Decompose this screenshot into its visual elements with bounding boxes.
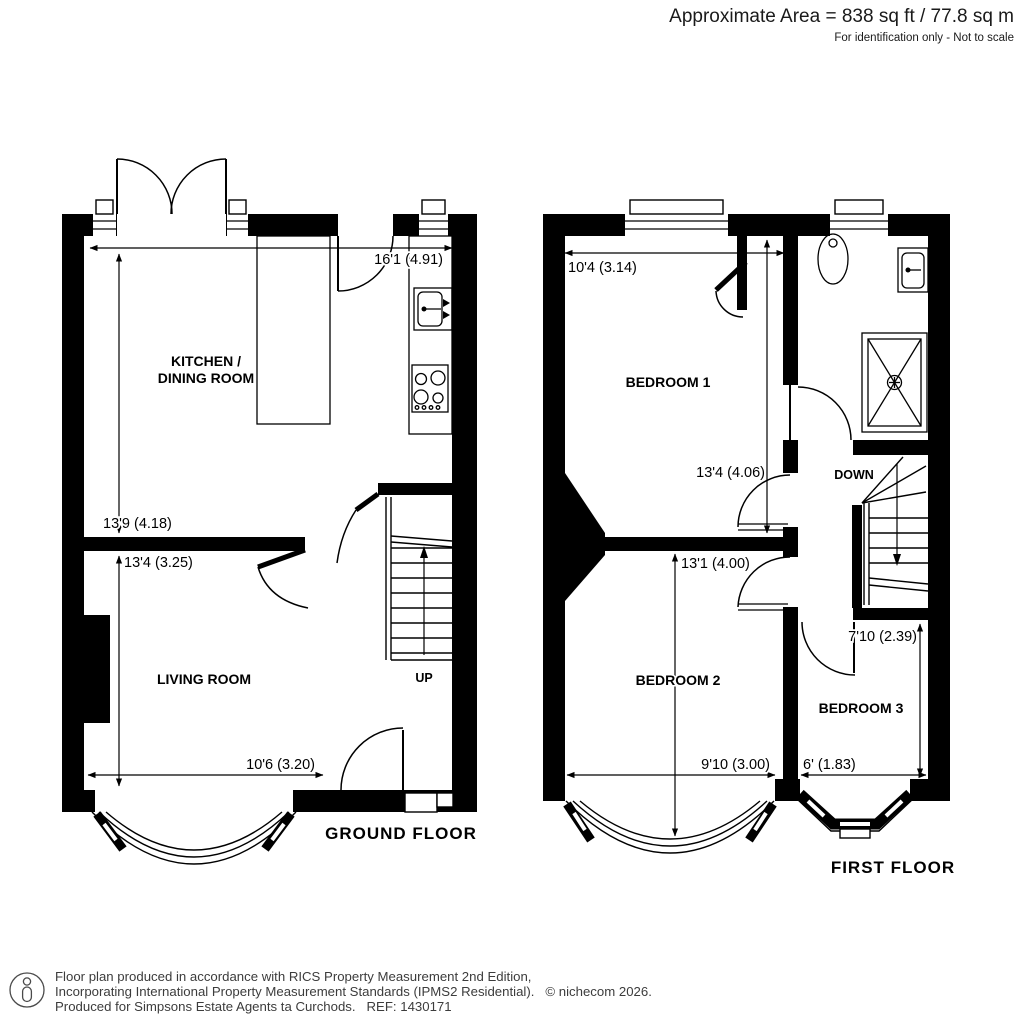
hob-icon bbox=[412, 365, 448, 412]
bay-window-icon bbox=[565, 779, 775, 853]
floor-plan-svg: Approximate Area = 838 sq ft / 77.8 sq m… bbox=[0, 0, 1024, 1018]
floor-plan-page: Approximate Area = 838 sq ft / 77.8 sq m… bbox=[0, 0, 1024, 1018]
bedroom3-label: BEDROOM 3 bbox=[819, 700, 904, 716]
bedroom3-width-dim: 6' (1.83) bbox=[803, 757, 856, 773]
kitchen-island bbox=[257, 236, 330, 424]
chimney-breast bbox=[84, 615, 110, 723]
bedroom3-depth-dim: 7'10 (2.39) bbox=[848, 629, 917, 645]
stairwell-wall bbox=[852, 505, 862, 608]
header: Approximate Area = 838 sq ft / 77.8 sq m… bbox=[669, 6, 1014, 44]
ground-floor-title: GROUND FLOOR bbox=[325, 824, 477, 843]
stairs-top-wall bbox=[378, 483, 452, 495]
bathroom-door-icon bbox=[790, 385, 851, 440]
footer-line2: Incorporating International Property Mea… bbox=[55, 984, 652, 999]
bedroom1-label: BEDROOM 1 bbox=[626, 374, 711, 390]
approximate-area-text: Approximate Area = 838 sq ft / 77.8 sq m bbox=[669, 6, 1014, 27]
window-sill bbox=[422, 200, 445, 214]
first-floor-plan: DOWN 10'4 (3.14) 13'4 bbox=[543, 200, 955, 877]
bedroom-divider-wall bbox=[600, 537, 785, 551]
shower-icon bbox=[862, 333, 927, 432]
kitchen-label-line1: KITCHEN / bbox=[171, 353, 241, 369]
bedroom2-bedroom3-divider bbox=[783, 607, 798, 779]
bay-window-icon bbox=[92, 790, 296, 864]
bedroom2-label: BEDROOM 2 bbox=[636, 672, 721, 688]
footer: Floor plan produced in accordance with R… bbox=[10, 969, 652, 1014]
toilet-icon bbox=[818, 234, 848, 284]
porch-step bbox=[405, 793, 437, 812]
ground-floor-dimensions: 16'1 (4.91) 13'9 (4.18) 13'4 (3.25) 10'6… bbox=[88, 248, 452, 786]
person-icon bbox=[10, 973, 44, 1007]
window-sill bbox=[630, 200, 723, 214]
bathroom-sink-icon bbox=[898, 248, 928, 292]
kitchen-living-divider-wall bbox=[84, 537, 305, 551]
window-sill bbox=[835, 200, 883, 214]
bedroom3-top-wall bbox=[853, 608, 928, 620]
chimney-chamfer bbox=[565, 473, 605, 601]
up-label: UP bbox=[415, 671, 432, 685]
footer-line3: Produced for Simpsons Estate Agents ta C… bbox=[55, 999, 452, 1014]
bedroom1-wall-stub bbox=[737, 236, 747, 310]
staircase-down: DOWN bbox=[834, 457, 928, 605]
bedroom1-door-icon bbox=[738, 475, 790, 530]
window-sill bbox=[96, 200, 113, 214]
sink-icon bbox=[414, 288, 452, 330]
bathroom-bottom-wall bbox=[853, 440, 928, 455]
kitchen-width-dim: 16'1 (4.91) bbox=[374, 252, 443, 268]
bedroom3-door-icon bbox=[802, 622, 855, 675]
down-arrow-icon bbox=[893, 464, 901, 566]
identification-note-text: For identification only - Not to scale bbox=[834, 32, 1014, 44]
bedroom2-width-dim: 9'10 (3.00) bbox=[701, 757, 770, 773]
ground-floor-walls bbox=[62, 214, 477, 812]
hall-door-icon bbox=[337, 494, 378, 563]
down-label: DOWN bbox=[834, 468, 874, 482]
kitchen-label-line2: DINING ROOM bbox=[158, 370, 254, 386]
staircase-up: UP bbox=[386, 497, 452, 685]
bedroom1-width-dim: 10'4 (3.14) bbox=[568, 260, 637, 276]
footer-line1: Floor plan produced in accordance with R… bbox=[55, 969, 531, 984]
porch-step bbox=[437, 793, 453, 807]
living-room-door-icon bbox=[258, 550, 308, 608]
first-floor-title: FIRST FLOOR bbox=[831, 858, 955, 877]
living-room-label: LIVING ROOM bbox=[157, 671, 251, 687]
ground-floor-plan: UP bbox=[62, 159, 477, 864]
bedroom2-depth-dim: 13'1 (4.00) bbox=[681, 556, 750, 572]
living-room-depth-dim: 13'4 (3.25) bbox=[124, 555, 193, 571]
living-room-width-dim: 10'6 (3.20) bbox=[246, 757, 315, 773]
kitchen-depth-dim: 13'9 (4.18) bbox=[103, 516, 172, 532]
french-doors-icon bbox=[117, 159, 226, 214]
window-sill bbox=[229, 200, 246, 214]
canted-bay-window-icon bbox=[796, 779, 914, 838]
bedroom1-depth-dim: 13'4 (4.06) bbox=[696, 465, 765, 481]
